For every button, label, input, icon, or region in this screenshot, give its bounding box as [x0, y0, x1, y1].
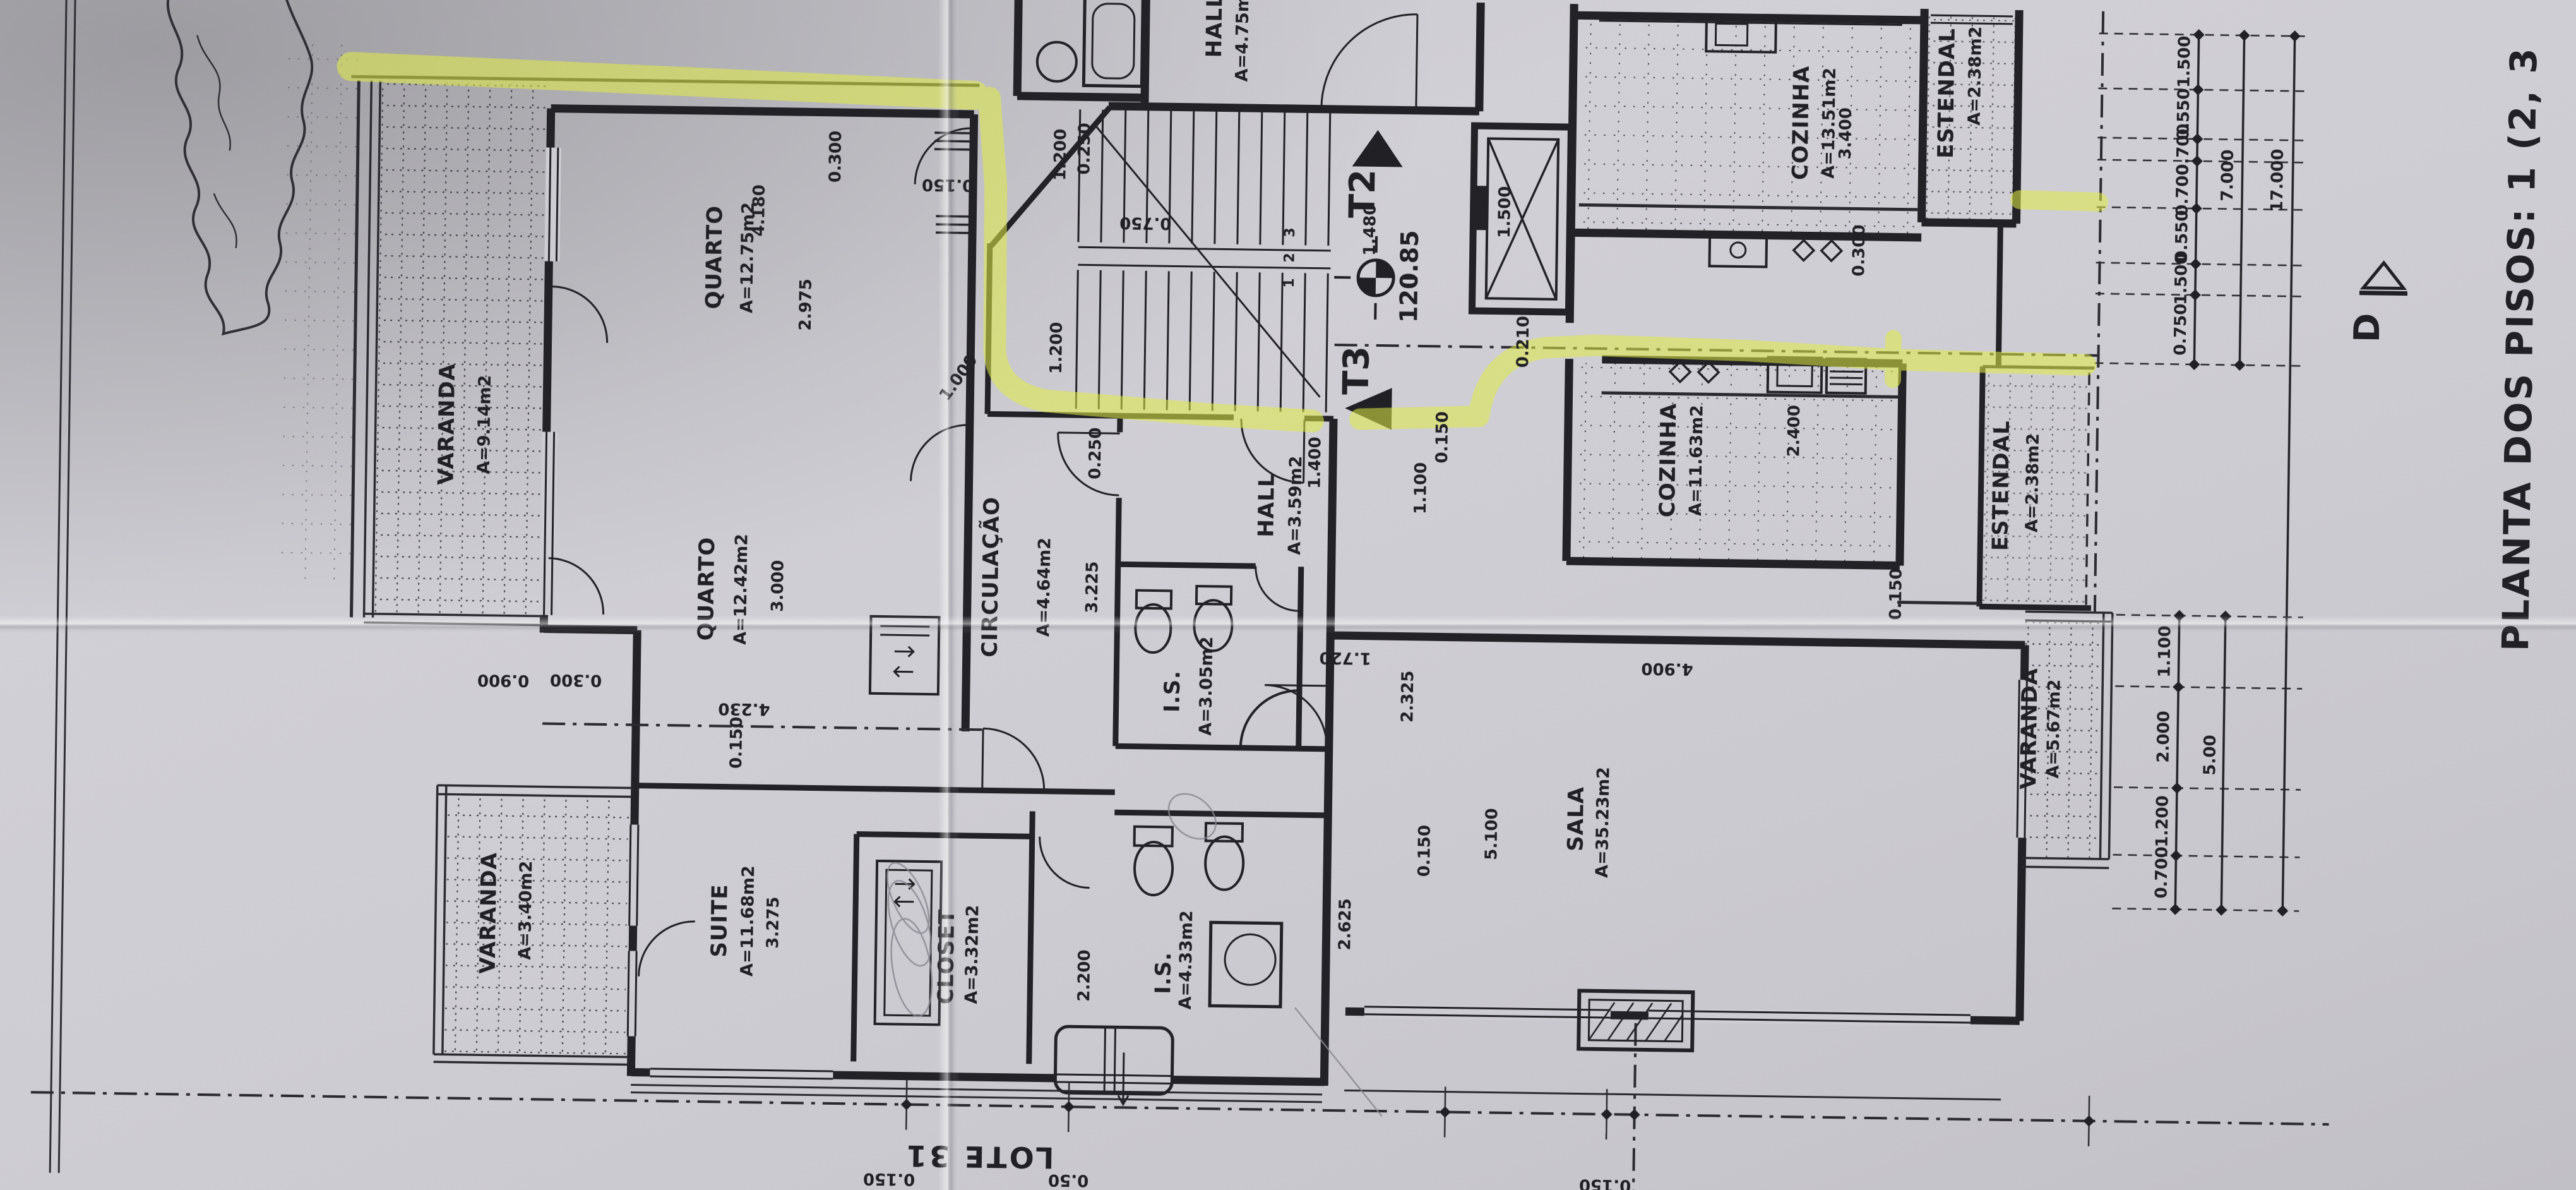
plan-canvas: VARANDA A=9.14m2 QUARTO A=12.75m2 QUARTO… [0, 0, 2576, 1190]
floor-plan-photo: VARANDA A=9.14m2 QUARTO A=12.75m2 QUARTO… [0, 0, 2576, 1190]
paper-grain [0, 0, 2576, 1190]
